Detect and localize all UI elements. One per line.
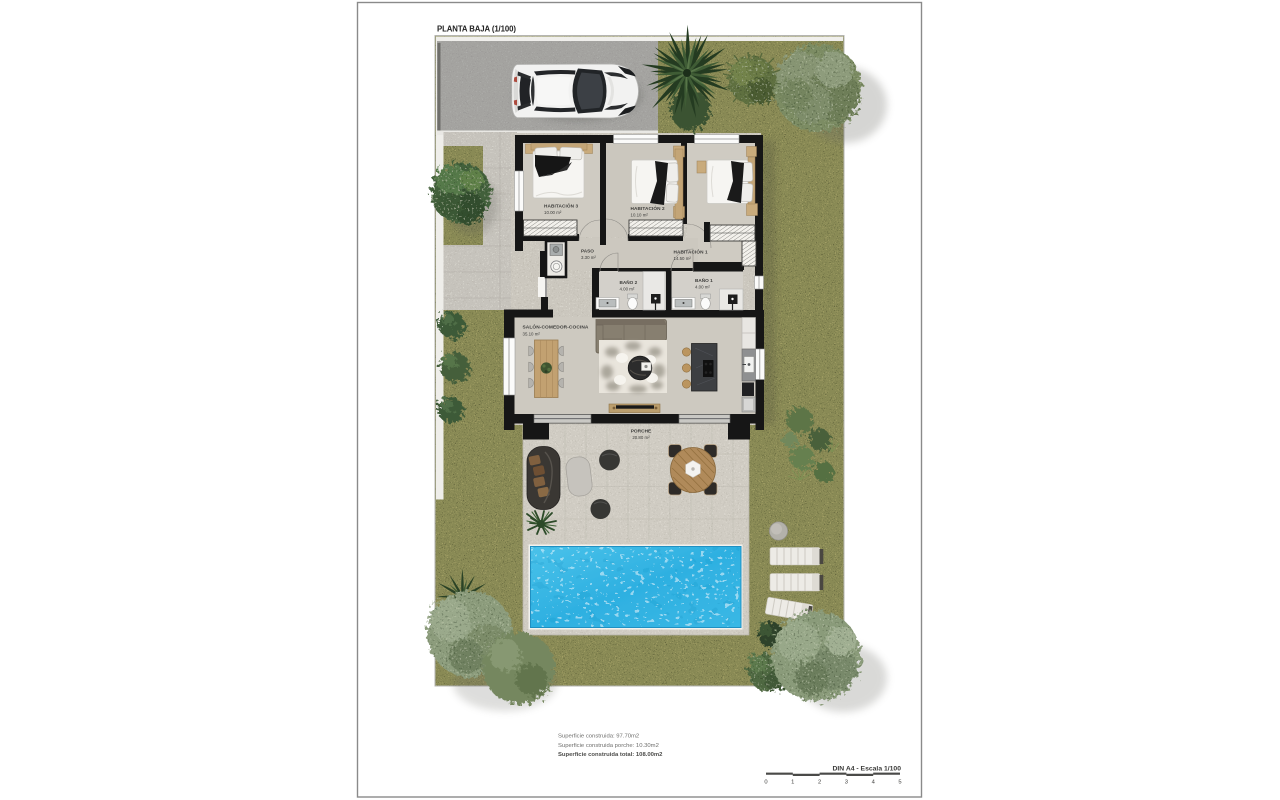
svg-text:DIN A4 - Escala 1/100: DIN A4 - Escala 1/100 — [832, 766, 901, 773]
svg-text:20.80 m²: 20.80 m² — [632, 435, 650, 440]
svg-text:BAÑO 1: BAÑO 1 — [695, 277, 713, 283]
svg-text:3.30 m²: 3.30 m² — [581, 255, 596, 260]
svg-text:HABITACIÓN 2: HABITACIÓN 2 — [631, 204, 665, 211]
svg-text:1: 1 — [791, 780, 794, 786]
svg-text:HABITACIÓN 3: HABITACIÓN 3 — [544, 202, 578, 209]
svg-text:Superficie construida total: 1: Superficie construida total: 108.00m2 — [558, 752, 663, 758]
svg-text:35.10 m²: 35.10 m² — [523, 332, 541, 337]
svg-text:4.00 m²: 4.00 m² — [620, 287, 635, 292]
svg-text:3: 3 — [845, 780, 848, 786]
svg-text:HABITACIÓN 1: HABITACIÓN 1 — [674, 248, 708, 255]
svg-text:Superficie construida porche:: Superficie construida porche: 10.30m2 — [558, 743, 659, 749]
svg-text:0: 0 — [764, 780, 767, 786]
svg-text:5: 5 — [898, 780, 901, 786]
svg-text:10.00 m²: 10.00 m² — [544, 210, 562, 215]
svg-text:14.50 m²: 14.50 m² — [674, 256, 692, 261]
svg-text:PASO: PASO — [581, 249, 594, 254]
svg-text:BAÑO 2: BAÑO 2 — [620, 279, 638, 285]
svg-text:Superficie construida: 97.70m2: Superficie construida: 97.70m2 — [558, 734, 639, 740]
svg-text:PLANTA BAJA (1/100): PLANTA BAJA (1/100) — [437, 25, 516, 34]
svg-text:4.00 m²: 4.00 m² — [695, 285, 710, 290]
svg-text:2: 2 — [818, 780, 821, 786]
svg-text:10.10 m²: 10.10 m² — [631, 213, 649, 218]
svg-text:PORCHE: PORCHE — [631, 429, 652, 435]
